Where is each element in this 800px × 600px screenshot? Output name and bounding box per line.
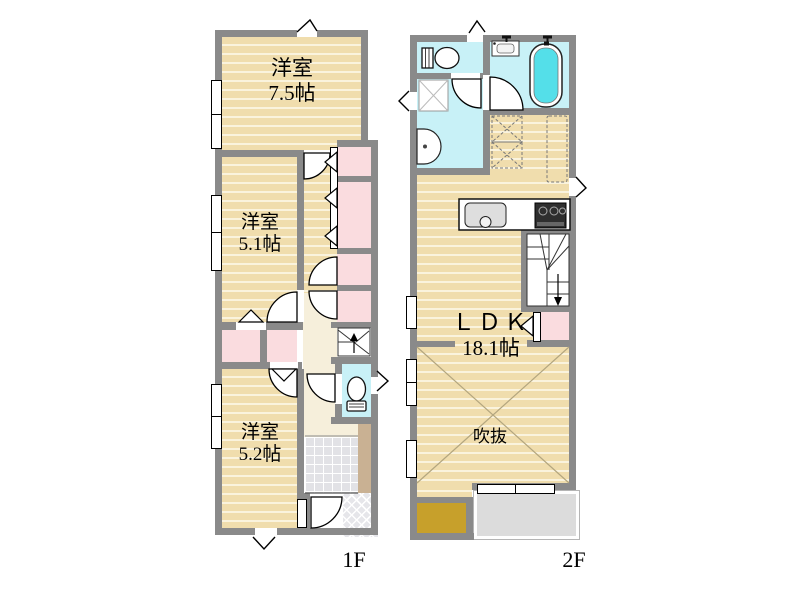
door-swing-arc	[267, 153, 342, 528]
kitchen-counter	[459, 199, 570, 230]
stairs-up-icon	[338, 328, 370, 356]
room-label-7-5: 洋室 7.5帖	[227, 56, 357, 106]
floor-label-2f: 2F	[550, 547, 598, 573]
floorplan-canvas: 洋室 7.5帖 洋室 5.1帖 洋室 5.2帖 1F	[0, 0, 800, 600]
washing-machine-pan-icon	[419, 80, 448, 111]
refrigerator-space-dashed	[492, 116, 567, 182]
stove-icon	[535, 203, 566, 228]
door-swing-arc	[452, 77, 523, 110]
bath-sink-icon	[492, 41, 519, 56]
kitchen-sink-icon	[465, 203, 506, 228]
room-name: 洋室	[227, 56, 357, 81]
bathtub-icon	[530, 42, 562, 108]
void-cross-lines	[417, 347, 569, 483]
stairs-down-icon	[527, 234, 569, 306]
ldk-name: ＬＤＫ	[425, 309, 557, 336]
room-label-5-1: 洋室 5.1帖	[219, 212, 301, 257]
room-name: 洋室	[219, 422, 301, 444]
ldk-size-label: 18.1帖	[425, 336, 557, 361]
room-name: 洋室	[219, 212, 301, 234]
toilet-icon	[347, 377, 366, 411]
room-size: 5.1帖	[219, 234, 301, 256]
ldk-label: ＬＤＫ	[425, 309, 557, 336]
vanity-icon	[417, 129, 441, 164]
floor-label-1f: 1F	[330, 547, 378, 573]
room-label-5-2: 洋室 5.2帖	[219, 422, 301, 467]
room-size: 7.5帖	[227, 81, 357, 106]
toilet-icon	[422, 48, 459, 69]
room-size: 5.2帖	[219, 444, 301, 466]
plan-2f-symbols	[395, 10, 600, 555]
void-label: 吹抜	[452, 427, 528, 447]
